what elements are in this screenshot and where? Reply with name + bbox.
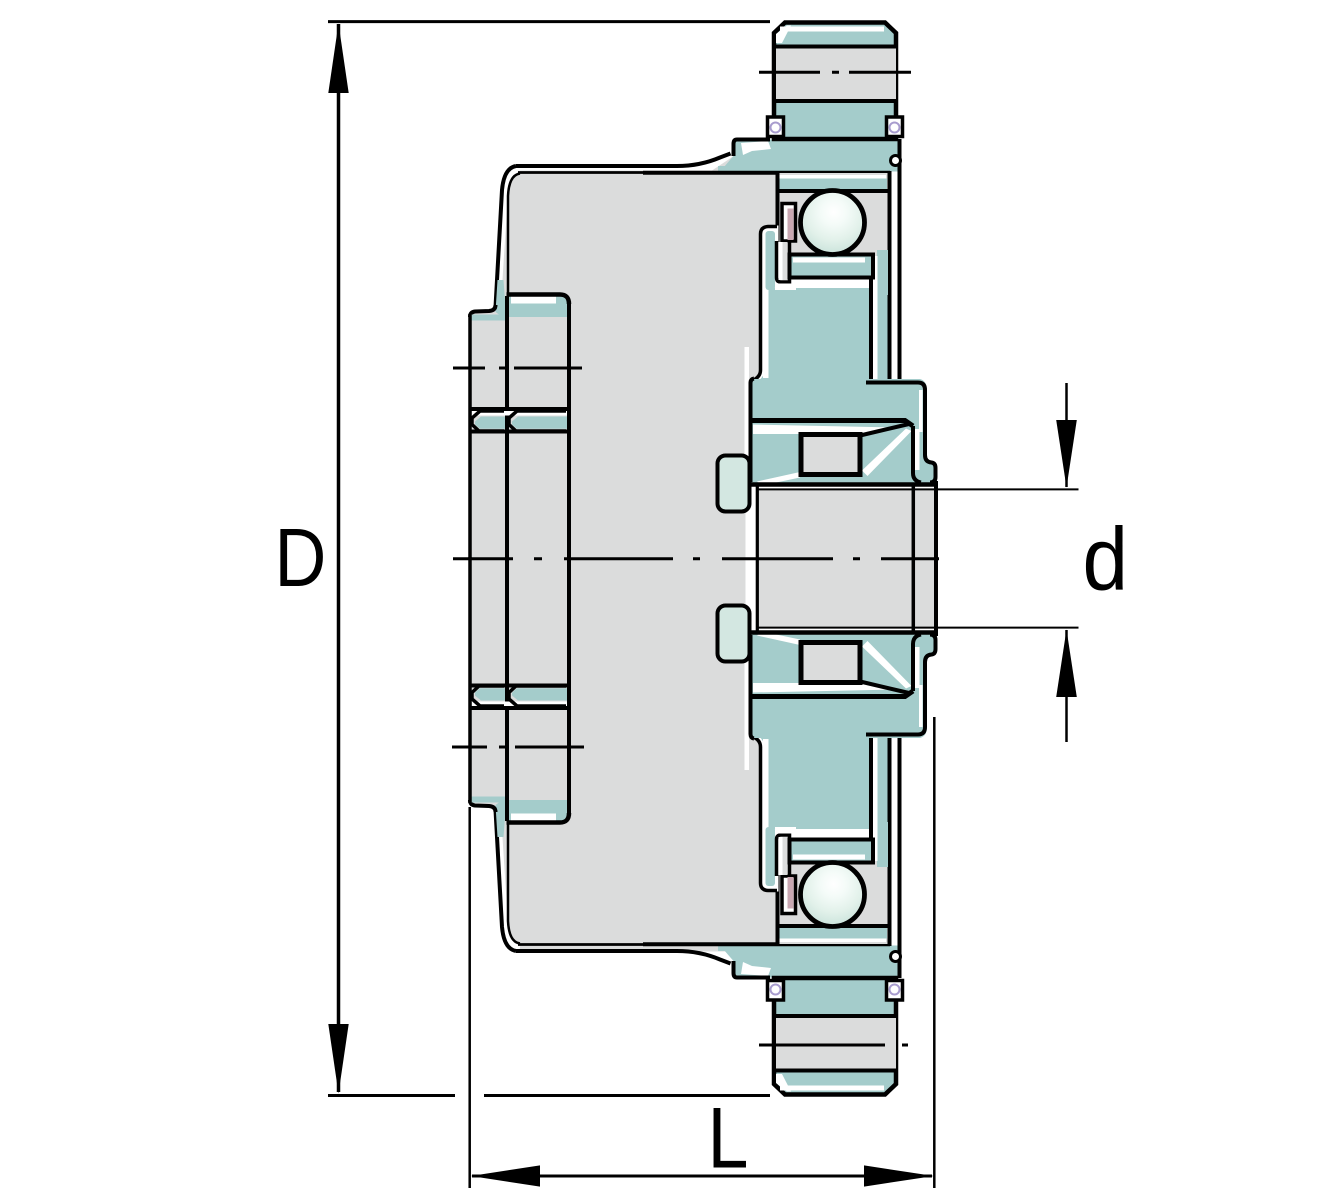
svg-text:D: D xyxy=(275,512,327,604)
svg-text:L: L xyxy=(708,1090,749,1187)
svg-text:d: d xyxy=(1083,510,1129,609)
